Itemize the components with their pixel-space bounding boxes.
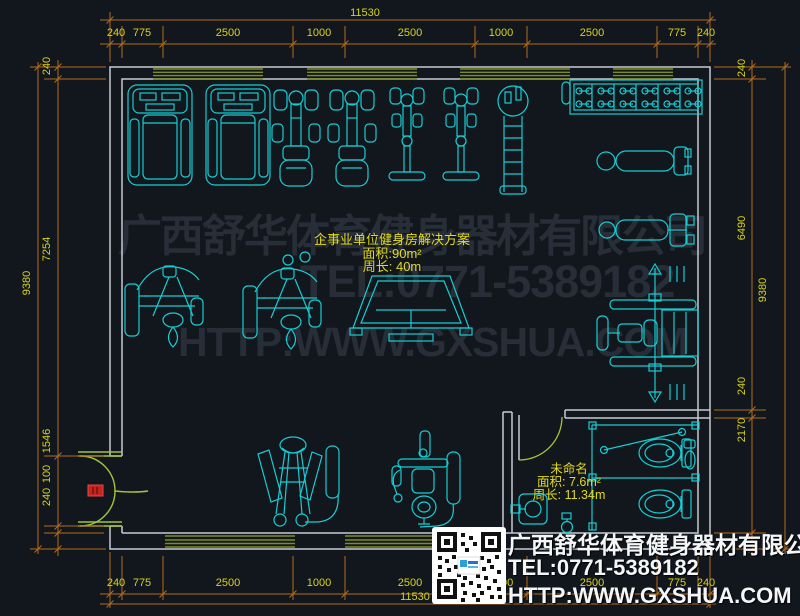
smith-machine-icon — [597, 264, 698, 402]
dim-label: 7254 — [41, 237, 53, 261]
treadmill-icon — [206, 85, 270, 185]
dim-label: 240 — [41, 57, 53, 75]
dumbbell-rack-icon — [562, 80, 702, 114]
dim-top-total: 11530 — [350, 7, 380, 19]
adjustable-bench-icon — [599, 214, 694, 246]
flat-bench-icon — [597, 147, 691, 175]
urinal-icon — [684, 440, 695, 469]
pec-deck-machine-icon — [258, 437, 339, 526]
upright-bike-icon — [443, 88, 479, 180]
toilet-icon — [639, 490, 691, 518]
contact-website: HTTP:WWW.GXSHUA.COM — [508, 583, 792, 609]
dim-label: 775 — [668, 27, 686, 39]
floor-plan-svg — [0, 0, 800, 616]
dim-label: 2170 — [736, 418, 748, 442]
dim-label: 240 — [736, 59, 748, 77]
dim-label: 2500 — [580, 27, 604, 39]
gym-equipment — [125, 80, 702, 533]
dim-right-total: 9380 — [757, 278, 769, 302]
door-handle — [88, 485, 103, 496]
dim-label: 1000 — [307, 27, 331, 39]
dim-label: 240 — [697, 27, 715, 39]
dim-label: 240 — [107, 577, 125, 589]
upright-bike-icon — [389, 88, 425, 180]
dim-label: 1000 — [489, 27, 513, 39]
dim-label: 240 — [107, 27, 125, 39]
dim-label: 6490 — [736, 216, 748, 240]
vertical-climber-icon — [498, 86, 528, 194]
plan-title: 企事业单位健身房解决方案 — [314, 233, 470, 247]
dim-label: 2500 — [398, 27, 422, 39]
dim-label: 775 — [133, 577, 151, 589]
dim-left-total: 9380 — [21, 271, 33, 295]
dim-label: 100 — [41, 465, 53, 483]
cable-fly-machine-icon — [125, 266, 203, 347]
dim-bottom-total: 11530 — [400, 591, 430, 603]
dim-label: 2500 — [216, 27, 240, 39]
cable-fly-machine-icon — [243, 268, 321, 349]
lat-pulldown-machine-icon — [392, 431, 460, 527]
treadmill-icon — [128, 85, 192, 185]
toilet-room-door — [519, 417, 562, 460]
recumbent-bike-icon — [328, 90, 376, 186]
dim-label: 2500 — [216, 577, 240, 589]
dim-label: 1000 — [307, 577, 331, 589]
dim-label: 240 — [736, 377, 748, 395]
hack-squat-machine-icon — [350, 276, 472, 341]
plan-perimeter: 周长: 40m — [363, 260, 422, 274]
contact-tel: TEL:0771-5389182 — [508, 555, 699, 581]
recumbent-bike-icon — [272, 90, 320, 186]
toilet-icon — [639, 439, 691, 467]
dim-label: 2500 — [398, 577, 422, 589]
walls — [110, 67, 710, 549]
dim-label: 1546 — [41, 429, 53, 453]
dim-label: 775 — [133, 27, 151, 39]
cad-floor-plan-image[interactable]: 广西舒华体育健身器材有限公司 TEL:0771-5389182 HTTP:WWW… — [0, 0, 800, 616]
room-perimeter: 周长: 11.34m — [533, 489, 606, 503]
toilet-cubicles — [589, 422, 699, 530]
dim-label: 240 — [41, 488, 53, 506]
qr-code — [432, 527, 506, 609]
